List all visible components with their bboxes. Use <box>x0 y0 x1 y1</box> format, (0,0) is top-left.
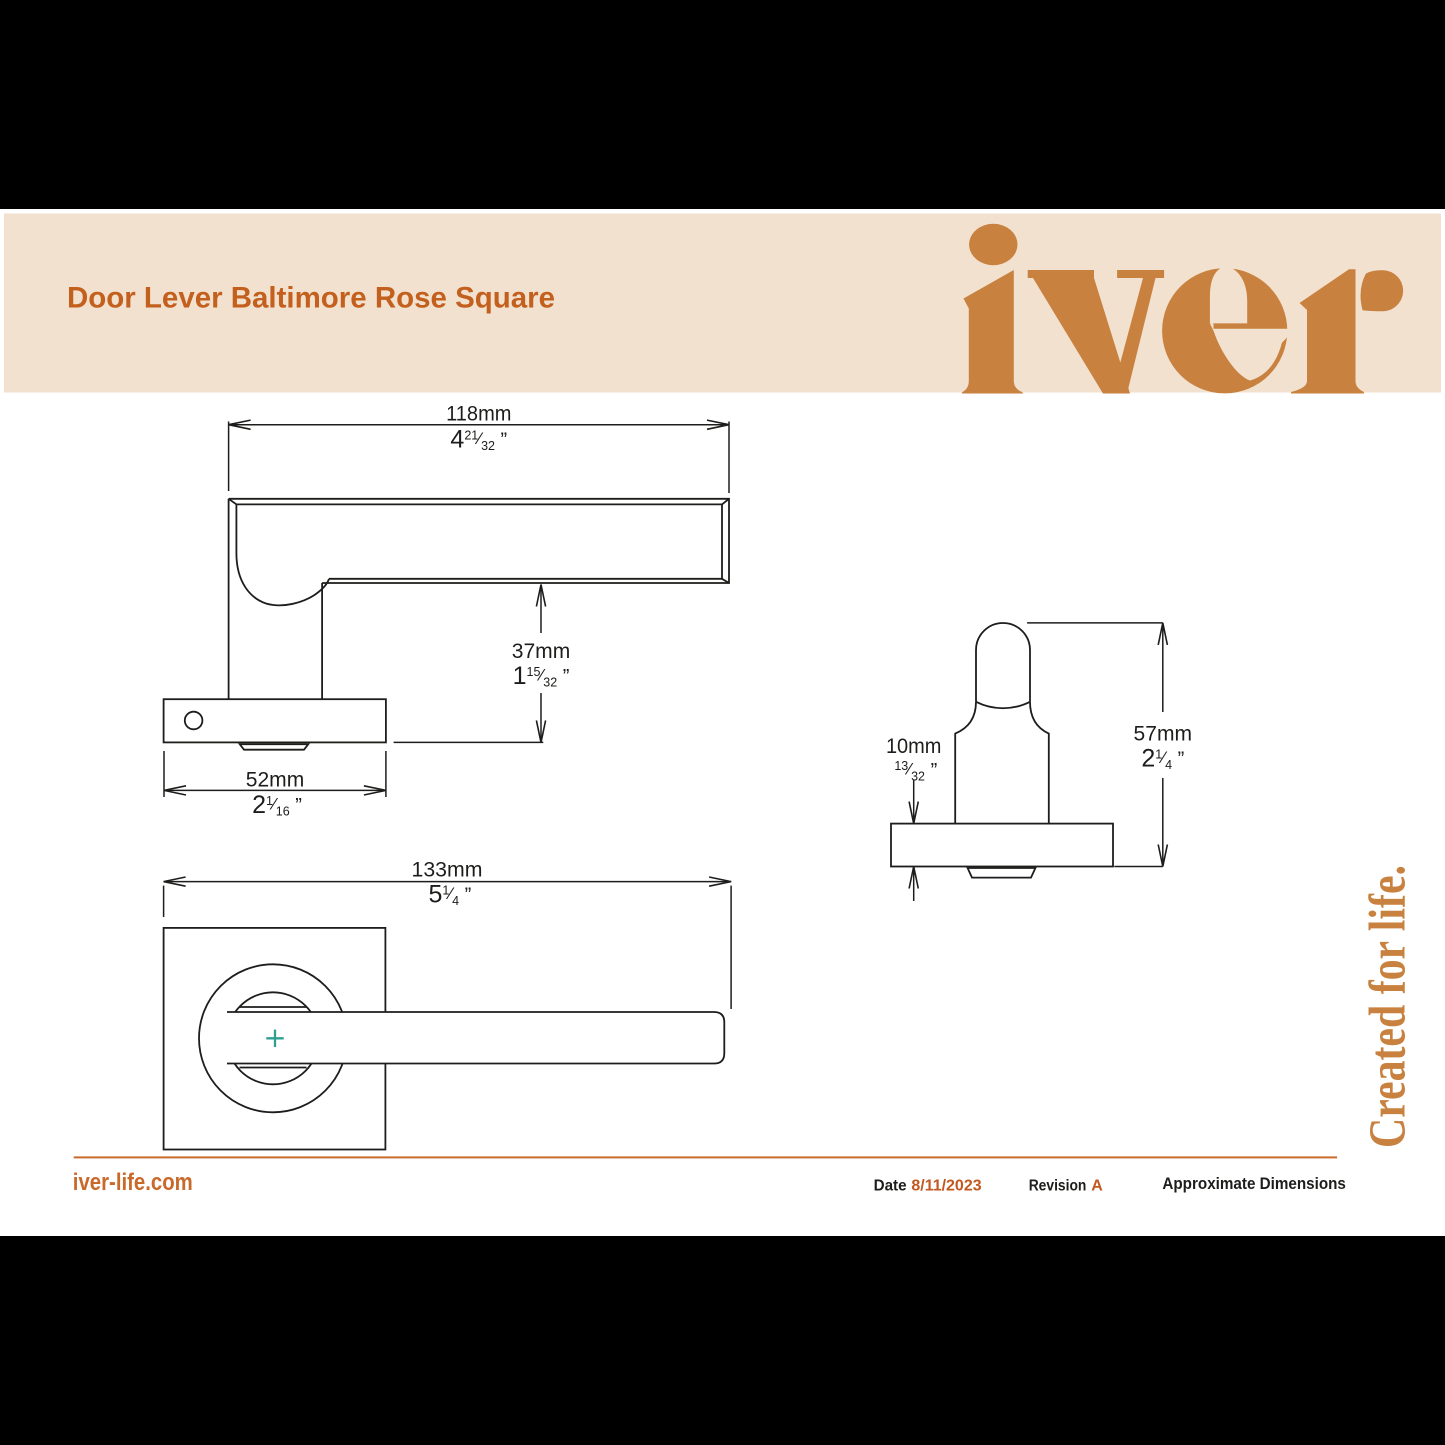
svg-text:57mm: 57mm <box>1134 723 1193 746</box>
svg-text:52mm: 52mm <box>246 769 305 792</box>
svg-text:10mm: 10mm <box>886 735 942 758</box>
svg-text:8/11/2023: 8/11/2023 <box>911 1178 981 1195</box>
svg-text:Date: Date <box>874 1178 907 1195</box>
svg-text:133mm: 133mm <box>412 859 483 882</box>
svg-text:iver-life.com: iver-life.com <box>73 1169 193 1196</box>
svg-text:Created for life.: Created for life. <box>1360 865 1417 1148</box>
svg-text:37mm: 37mm <box>512 640 571 663</box>
svg-text:118mm: 118mm <box>446 403 511 426</box>
svg-text:A: A <box>1091 1178 1103 1195</box>
svg-text:Approximate Dimensions: Approximate Dimensions <box>1162 1174 1346 1193</box>
svg-text:Revision: Revision <box>1029 1178 1087 1195</box>
svg-text:Door Lever Baltimore Rose Squa: Door Lever Baltimore Rose Square <box>67 282 555 315</box>
